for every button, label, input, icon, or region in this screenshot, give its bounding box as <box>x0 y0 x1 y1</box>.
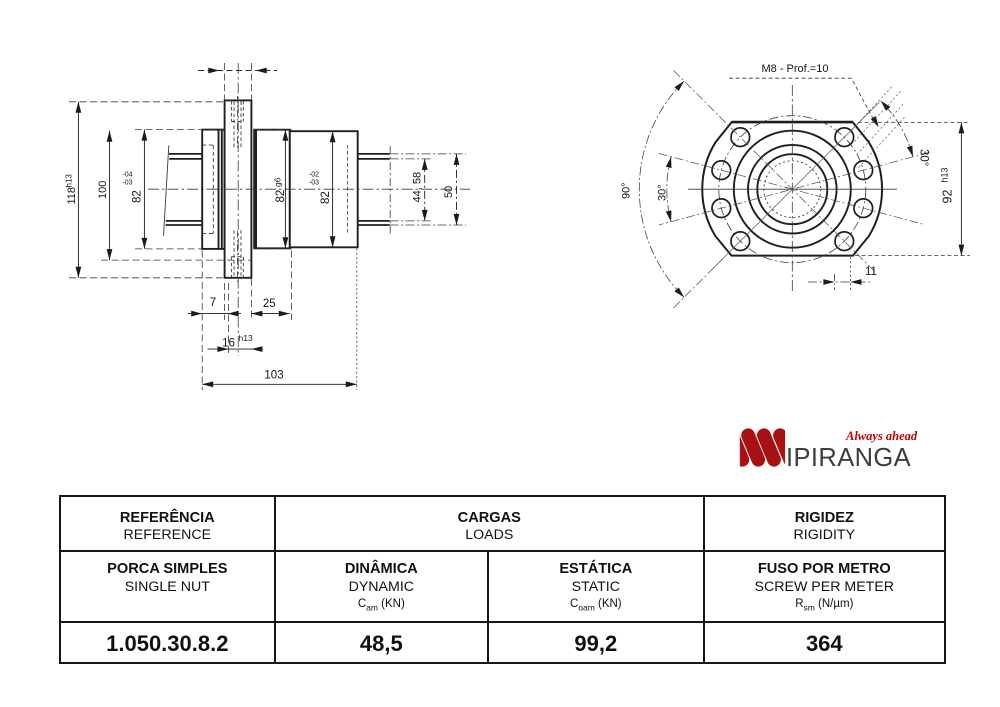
svg-text:30°: 30° <box>657 184 669 201</box>
svg-text:h13: h13 <box>940 167 950 182</box>
svg-text:-02: -02 <box>309 172 319 179</box>
svg-text:25: 25 <box>263 298 276 310</box>
svg-text:50: 50 <box>443 186 455 198</box>
svg-text:-03: -03 <box>122 180 132 187</box>
svg-text:h13: h13 <box>239 333 253 343</box>
svg-text:82: 82 <box>132 190 144 203</box>
svg-text:30°: 30° <box>918 149 930 166</box>
svg-text:82: 82 <box>320 191 332 204</box>
svg-text:100: 100 <box>97 181 109 199</box>
svg-text:44, 58: 44, 58 <box>411 172 423 203</box>
svg-text:-03: -03 <box>309 180 319 187</box>
svg-text:118: 118 <box>66 187 78 205</box>
svg-text:103: 103 <box>264 370 283 382</box>
svg-text:Always ahead: Always ahead <box>845 429 918 443</box>
svg-text:90°: 90° <box>621 182 633 199</box>
svg-text:-04: -04 <box>122 172 132 179</box>
svg-text:M8 - Prof.=10: M8 - Prof.=10 <box>762 63 829 75</box>
svg-text:92: 92 <box>941 190 955 204</box>
svg-text:16: 16 <box>222 338 235 350</box>
svg-text:7: 7 <box>210 297 216 309</box>
svg-text:h13: h13 <box>65 174 74 188</box>
svg-text:IPIRANGA: IPIRANGA <box>786 444 911 472</box>
svg-text:82: 82 <box>275 190 287 203</box>
svg-text:g6: g6 <box>272 177 282 187</box>
svg-text:11: 11 <box>865 266 877 278</box>
